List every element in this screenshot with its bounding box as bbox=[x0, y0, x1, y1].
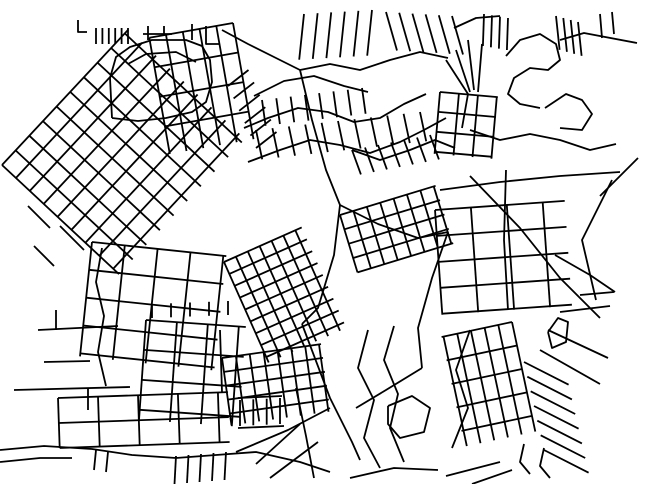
road-polyline bbox=[468, 40, 474, 90]
road-segment bbox=[340, 215, 358, 272]
road-segment bbox=[146, 320, 246, 327]
road-segment bbox=[354, 119, 360, 148]
road-polyline bbox=[28, 206, 50, 228]
road-polyline bbox=[555, 255, 615, 292]
road-segment bbox=[354, 11, 359, 57]
road-segment bbox=[165, 112, 249, 127]
road-segment bbox=[462, 416, 533, 431]
road-segment bbox=[225, 452, 227, 480]
road-polyline bbox=[236, 408, 330, 452]
road-polyline bbox=[254, 76, 368, 96]
road-polyline bbox=[612, 12, 614, 34]
road-polyline bbox=[548, 318, 568, 348]
road-segment bbox=[387, 116, 393, 145]
road-segment bbox=[200, 454, 202, 482]
street-map-page bbox=[0, 0, 655, 484]
road-segment bbox=[371, 117, 377, 146]
road-segment bbox=[248, 251, 293, 352]
road-segment bbox=[16, 150, 133, 259]
road-segment bbox=[98, 397, 100, 447]
road-polyline bbox=[44, 361, 90, 362]
road-polyline bbox=[222, 30, 300, 70]
road-segment bbox=[260, 246, 305, 347]
road-polyline bbox=[520, 444, 530, 474]
road-segment bbox=[16, 43, 142, 178]
road-segment bbox=[380, 203, 398, 260]
road-segment bbox=[319, 93, 323, 119]
road-segment bbox=[178, 252, 190, 366]
road-segment bbox=[527, 377, 572, 400]
road-polyline bbox=[302, 205, 340, 324]
road-segment bbox=[59, 417, 229, 423]
road-polyline bbox=[540, 350, 600, 384]
road-segment bbox=[394, 199, 412, 256]
road-segment bbox=[29, 136, 146, 245]
road-segment bbox=[218, 392, 220, 442]
road-segment bbox=[426, 14, 437, 53]
road-segment bbox=[452, 16, 463, 55]
road-segment bbox=[578, 22, 582, 56]
road-polyline bbox=[600, 14, 602, 38]
road-polyline bbox=[472, 470, 512, 484]
road-segment bbox=[473, 95, 478, 157]
road-segment bbox=[58, 398, 60, 448]
road-polyline bbox=[384, 326, 404, 462]
road-polyline bbox=[34, 246, 54, 266]
road-polyline bbox=[600, 158, 638, 196]
road-segment bbox=[201, 324, 208, 424]
road-segment bbox=[430, 135, 439, 159]
road-segment bbox=[420, 112, 426, 141]
road-segment bbox=[438, 112, 496, 117]
road-segment bbox=[144, 350, 244, 357]
road-polyline bbox=[238, 396, 282, 398]
road-segment bbox=[412, 14, 423, 53]
road-segment bbox=[563, 18, 567, 52]
road-segment bbox=[440, 92, 498, 97]
road-segment bbox=[86, 298, 220, 312]
map-canvas bbox=[0, 0, 655, 484]
road-polyline bbox=[106, 452, 108, 472]
road-segment bbox=[407, 195, 425, 252]
road-segment bbox=[352, 150, 361, 174]
road-segment bbox=[170, 322, 177, 422]
road-segment bbox=[348, 90, 352, 116]
road-polyline bbox=[350, 468, 438, 478]
road-segment bbox=[256, 132, 277, 148]
road-segment bbox=[353, 229, 449, 258]
road-polyline bbox=[94, 450, 96, 470]
road-polyline bbox=[238, 426, 284, 428]
road-polyline bbox=[470, 176, 600, 318]
road-polyline bbox=[358, 330, 380, 468]
road-segment bbox=[483, 14, 484, 46]
road-polyline bbox=[548, 330, 608, 358]
road-segment bbox=[139, 320, 146, 420]
road-segment bbox=[272, 241, 317, 341]
road-polyline bbox=[78, 20, 87, 32]
road-segment bbox=[60, 442, 230, 448]
road-segment bbox=[447, 346, 517, 361]
road-segment bbox=[367, 207, 385, 264]
road-polyline bbox=[300, 52, 448, 70]
road-segment bbox=[89, 270, 223, 284]
road-segment bbox=[340, 186, 436, 215]
road-segment bbox=[440, 279, 570, 288]
road-segment bbox=[439, 15, 450, 54]
road-segment bbox=[349, 215, 445, 244]
road-segment bbox=[178, 394, 180, 444]
road-polyline bbox=[580, 292, 614, 295]
road-segment bbox=[262, 100, 266, 126]
road-polyline bbox=[545, 94, 592, 130]
road-segment bbox=[175, 456, 177, 484]
road-segment bbox=[322, 123, 328, 152]
road-segment bbox=[232, 327, 239, 427]
road-segment bbox=[299, 14, 304, 60]
road-segment bbox=[491, 15, 492, 47]
road-segment bbox=[367, 10, 372, 56]
road-segment bbox=[435, 152, 493, 157]
road-segment bbox=[399, 13, 410, 52]
road-polyline bbox=[506, 34, 560, 108]
road-segment bbox=[524, 362, 569, 385]
road-polyline bbox=[0, 458, 72, 462]
road-segment bbox=[454, 94, 459, 156]
road-segment bbox=[236, 257, 281, 358]
road-segment bbox=[340, 12, 345, 58]
road-segment bbox=[531, 391, 576, 414]
road-polyline bbox=[446, 462, 500, 476]
road-segment bbox=[239, 95, 260, 111]
road-segment bbox=[2, 30, 128, 165]
road-segment bbox=[92, 242, 226, 256]
road-segment bbox=[319, 344, 329, 411]
road-segment bbox=[437, 227, 567, 236]
road-segment bbox=[2, 165, 119, 274]
road-segment bbox=[499, 17, 500, 49]
road-segment bbox=[537, 421, 582, 444]
road-segment bbox=[313, 13, 318, 59]
road-segment bbox=[439, 253, 569, 262]
road-polyline bbox=[256, 424, 300, 464]
road-segment bbox=[534, 406, 579, 429]
road-polyline bbox=[220, 330, 222, 392]
road-polyline bbox=[352, 140, 455, 160]
road-segment bbox=[326, 12, 331, 58]
road-polyline bbox=[388, 396, 430, 438]
road-segment bbox=[541, 435, 586, 458]
road-segment bbox=[85, 107, 211, 242]
road-segment bbox=[155, 53, 239, 68]
road-polyline bbox=[454, 16, 500, 28]
road-segment bbox=[44, 69, 170, 204]
road-polyline bbox=[300, 70, 340, 205]
road-segment bbox=[417, 138, 426, 162]
road-polyline bbox=[440, 172, 620, 190]
road-polyline bbox=[478, 44, 482, 92]
road-segment bbox=[187, 455, 189, 483]
road-segment bbox=[491, 97, 496, 159]
road-segment bbox=[442, 322, 512, 337]
road-segment bbox=[58, 82, 184, 217]
road-segment bbox=[544, 450, 589, 473]
road-segment bbox=[295, 230, 340, 330]
road-polyline bbox=[582, 180, 612, 300]
road-segment bbox=[224, 262, 269, 363]
road-polyline bbox=[560, 306, 610, 312]
road-segment bbox=[30, 56, 156, 191]
road-segment bbox=[113, 133, 239, 268]
road-segment bbox=[435, 201, 565, 210]
road-segment bbox=[289, 126, 295, 155]
road-polyline bbox=[14, 387, 130, 390]
road-segment bbox=[276, 98, 280, 124]
road-polyline bbox=[96, 248, 106, 386]
road-segment bbox=[507, 18, 508, 50]
road-segment bbox=[386, 12, 397, 51]
road-segment bbox=[140, 410, 240, 417]
road-segment bbox=[452, 369, 522, 384]
road-polyline bbox=[504, 170, 508, 310]
road-segment bbox=[80, 242, 92, 356]
road-segment bbox=[99, 120, 225, 255]
road-segment bbox=[212, 453, 214, 481]
road-polyline bbox=[0, 446, 330, 472]
